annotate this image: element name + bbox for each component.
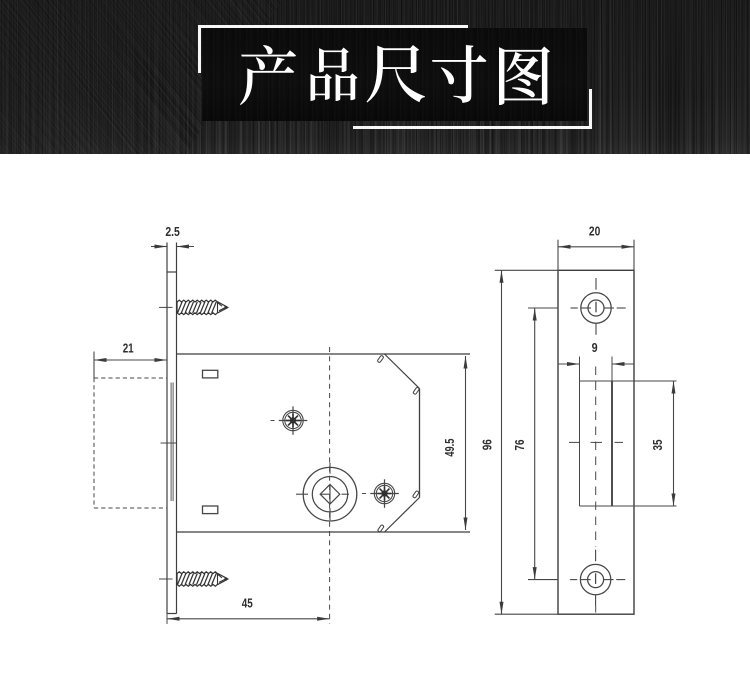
svg-text:76: 76 bbox=[512, 440, 527, 451]
svg-text:45: 45 bbox=[242, 596, 253, 611]
svg-text:20: 20 bbox=[589, 224, 600, 239]
svg-text:96: 96 bbox=[479, 439, 494, 450]
svg-text:21: 21 bbox=[123, 340, 134, 355]
svg-text:49.5: 49.5 bbox=[442, 439, 457, 457]
svg-text:2.5: 2.5 bbox=[165, 224, 180, 239]
svg-text:35: 35 bbox=[650, 440, 665, 451]
svg-text:9: 9 bbox=[592, 340, 598, 355]
